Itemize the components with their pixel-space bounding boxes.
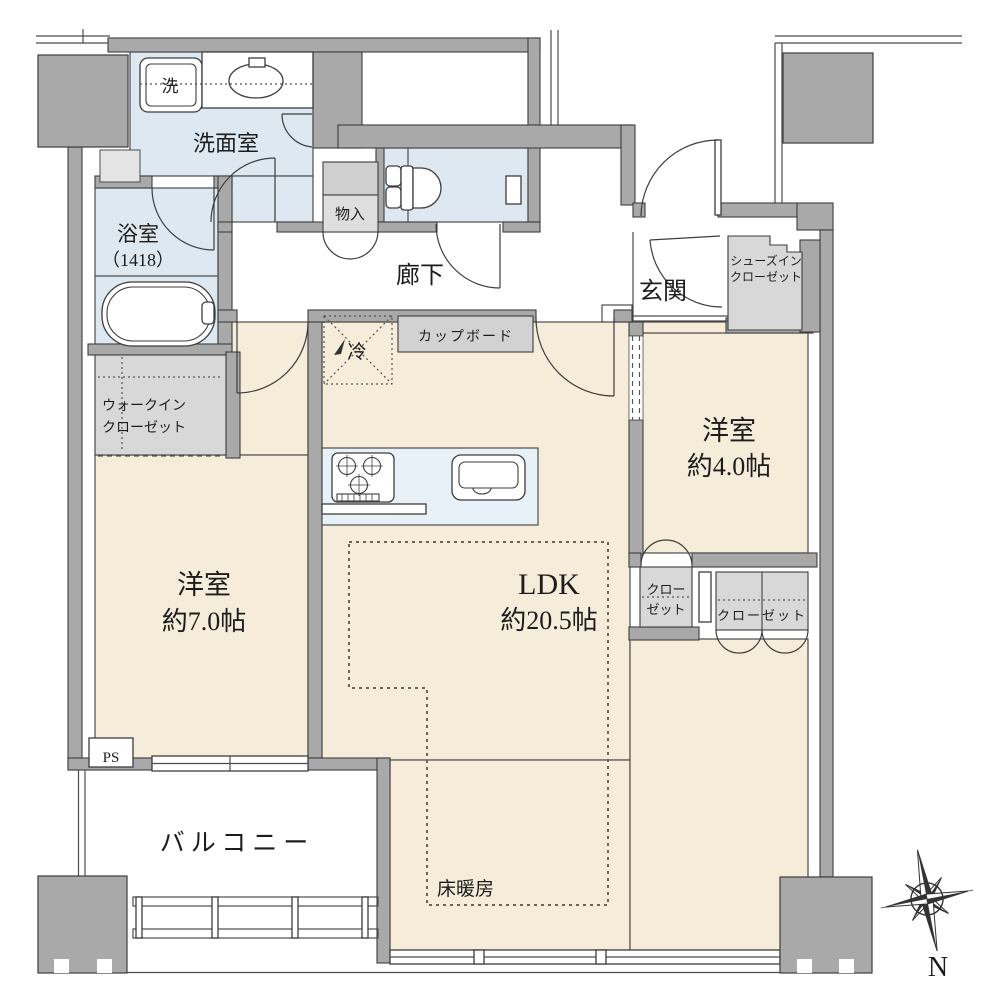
sliding-door-east-bedroom xyxy=(629,336,643,420)
ldk-south-window xyxy=(390,950,780,964)
entrance-label: 玄関 xyxy=(639,278,687,305)
storage-label: 物入 xyxy=(335,206,365,223)
entrance-step-strip xyxy=(633,322,729,333)
pillar-top-left xyxy=(38,55,128,147)
balcony-window-bedroom xyxy=(152,756,308,771)
ldk-label-line2: 約20.5帖 xyxy=(500,606,598,635)
toilet-door xyxy=(436,224,500,288)
walk-in-closet-label-line1: ウォークイン xyxy=(102,398,186,414)
shoes-closet-label-line2: クローゼット xyxy=(730,270,802,284)
bedroom-west-label-line2: 約7.0帖 xyxy=(162,607,247,636)
cupboard-label: カップボード xyxy=(418,329,514,345)
ldk-label-line1: LDK xyxy=(518,568,580,601)
closet-small-label-line2: ゼット xyxy=(646,602,685,617)
floor-plan: 洗 洗面室 浴室 （1418） 物入 廊下 玄関 シューズイン クローゼット ウ… xyxy=(0,0,1000,1000)
floor-plan-svg: 洗 洗面室 浴室 （1418） 物入 廊下 玄関 シューズイン クローゼット ウ… xyxy=(0,0,1000,1000)
bath-entry-step xyxy=(100,150,140,182)
closet-wide-label: クローゼット xyxy=(717,608,807,623)
entrance-door xyxy=(641,140,721,216)
compass-rose xyxy=(871,841,983,960)
counter-slot xyxy=(322,504,426,514)
storage-double-doors xyxy=(323,232,378,259)
bedroom-west-label-line1: 洋室 xyxy=(177,570,231,600)
entrance-step xyxy=(602,232,728,322)
closet-small-label-line1: クロー xyxy=(646,582,685,597)
shoes-closet-label-line1: シューズイン xyxy=(730,253,801,268)
closet-small xyxy=(640,567,692,627)
kitchen-counter xyxy=(322,448,538,525)
pillar-bottom-left xyxy=(38,876,127,973)
floor-heating-label: 床暖房 xyxy=(437,878,494,900)
washroom-floor-ext xyxy=(232,176,313,222)
pipe-space-label: PS xyxy=(103,750,120,766)
pillar-top-right xyxy=(783,53,873,143)
bathroom-label-line1: 浴室 xyxy=(117,222,159,246)
balcony-label: バルコニー xyxy=(160,830,315,857)
hallway-label: 廊下 xyxy=(396,262,444,289)
bedroom-east-label-line1: 洋室 xyxy=(702,416,756,446)
kitchen-sink xyxy=(452,455,525,500)
bedroom-east-label-line2: 約4.0帖 xyxy=(687,452,772,481)
washroom-label: 洗面室 xyxy=(193,131,259,156)
fridge-label: 冷 xyxy=(347,341,366,363)
bathroom-label-line2: （1418） xyxy=(102,250,174,270)
compass-north-label: N xyxy=(928,952,948,983)
washer-label: 洗 xyxy=(162,77,179,96)
stove xyxy=(332,453,394,502)
walk-in-closet-label-line2: クローゼット xyxy=(102,420,186,436)
pillar-between-closets xyxy=(699,572,711,622)
pillar-bottom-right xyxy=(780,877,872,973)
